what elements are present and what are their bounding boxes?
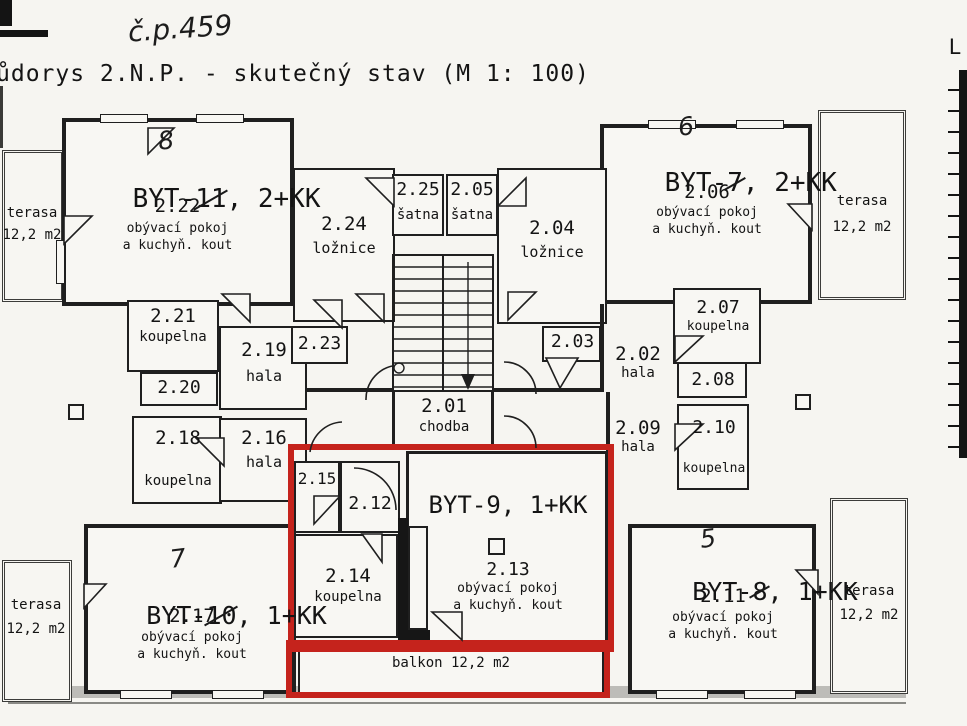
pillar	[488, 538, 505, 555]
wall-stub	[307, 388, 392, 392]
legend-ticks	[948, 70, 960, 458]
room-2-15-number: 2.15	[294, 470, 340, 488]
scan-mark-edge	[0, 86, 3, 148]
room-2-08-number: 2.08	[679, 370, 747, 390]
room-2-22-name-line1: obývací pokoj	[70, 222, 285, 237]
wall-shaft	[398, 518, 408, 646]
ground-line	[8, 702, 906, 704]
pillar	[68, 404, 84, 420]
wall-room-2-13	[406, 451, 608, 645]
terrace-top-right-name: terasa	[818, 194, 906, 210]
room-2-06-name-line1: obývací pokoj	[602, 206, 812, 221]
terrace-top-right-area: 12,2 m2	[818, 220, 906, 236]
door-arc	[366, 366, 392, 400]
room-2-13-number: 2.13	[410, 560, 606, 580]
pillar	[795, 394, 811, 410]
window	[736, 120, 784, 129]
scan-mark-corner	[0, 0, 12, 26]
room-2-06-number: 2.06	[602, 182, 812, 203]
terrace-bottom-right-area: 12,2 m2	[830, 608, 908, 624]
room-2-21-name: koupelna	[127, 330, 219, 346]
terrace-top-left-area: 12,2 m2	[0, 228, 64, 244]
balcony-label: balkon 12,2 m2	[300, 656, 602, 672]
room-2-07-name: koupelna	[675, 320, 761, 335]
room-2-10-number: 2.10	[679, 418, 749, 438]
room-2-24-name: ložnice	[293, 240, 395, 257]
room-2-22-number: 2.22	[70, 196, 285, 217]
room-2-01-number: 2.01	[394, 396, 494, 417]
room-2-04-number: 2.04	[497, 218, 607, 239]
apartment-byt9-title: BYT-9, 1+KK	[408, 492, 608, 519]
room-2-09-number: 2.09	[602, 418, 674, 439]
room-2-05-number: 2.05	[444, 180, 500, 200]
room-2-06-name-line2: a kuchyň. kout	[602, 223, 812, 238]
room-2-05-name: šatna	[444, 208, 500, 224]
door-triangle	[546, 358, 578, 388]
window	[744, 690, 796, 699]
room-2-13-name-line1: obývací pokoj	[410, 582, 606, 597]
room-2-17-number: 2.17	[88, 606, 296, 627]
room-2-11-name-line2: a kuchyň. kout	[630, 628, 816, 643]
stair-direction-arrow	[461, 374, 475, 390]
room-2-02-name: hala	[602, 366, 674, 382]
room-2-21-number: 2.21	[127, 306, 219, 327]
room-2-14-number: 2.14	[298, 566, 398, 587]
window	[100, 114, 148, 123]
handwritten-house-number: č.p.459	[127, 8, 233, 48]
room-2-07-number: 2.07	[675, 298, 761, 318]
window	[656, 690, 708, 699]
room-2-25-name: šatna	[390, 208, 446, 224]
terrace-bottom-left-name: terasa	[2, 598, 70, 614]
room-2-04-name: ložnice	[497, 244, 607, 261]
room-2-25-number: 2.25	[390, 180, 446, 200]
terrace-top-left	[2, 150, 64, 302]
terrace-top-left-name: terasa	[0, 206, 64, 222]
apartment-byt11-handwritten-number: 8	[156, 125, 175, 156]
room-2-23-number: 2.23	[291, 334, 348, 354]
room-2-20-number: 2.20	[140, 378, 218, 398]
room-2-11-number: 2.11	[630, 586, 816, 607]
room-2-12-number: 2.12	[340, 494, 400, 514]
room-2-19-name: hala	[221, 368, 307, 385]
room-2-16-name: hala	[221, 454, 307, 471]
shaft-cap	[408, 630, 430, 642]
room-2-17-name-line1: obývací pokoj	[88, 631, 296, 646]
legend-letter: L	[944, 36, 966, 60]
window	[56, 240, 65, 284]
window	[196, 114, 244, 123]
window	[120, 690, 172, 699]
room-2-09-name: hala	[602, 440, 674, 456]
room-2-18-name: koupelna	[134, 474, 222, 490]
terrace-bottom-left-area: 12,2 m2	[2, 622, 70, 638]
floorplan-scan: ůdorys 2.N.P. - skutečný stav (M 1: 100)…	[0, 0, 967, 726]
stair-start-mark	[394, 363, 404, 373]
staircase	[393, 255, 493, 391]
apartment-byt8-handwritten-number: 5	[698, 523, 717, 554]
room-2-22-name-line2: a kuchyň. kout	[70, 239, 285, 254]
scan-mark-line	[0, 30, 48, 37]
room-2-13-name-line2: a kuchyň. kout	[410, 599, 606, 614]
room-2-18-number: 2.18	[134, 428, 222, 449]
door-arc	[504, 416, 536, 448]
door-arc	[310, 422, 342, 452]
room-2-03-number: 2.03	[544, 332, 601, 352]
legend-table-edge	[959, 70, 967, 458]
room-2-24-number: 2.24	[293, 214, 395, 235]
room-2-10-name: koupelna	[679, 462, 749, 477]
room-2-02-number: 2.02	[602, 344, 674, 365]
room-2-01-name: chodba	[394, 420, 494, 436]
apartment-byt10-handwritten-number: 7	[168, 543, 187, 574]
window	[212, 690, 264, 699]
room-2-17-name-line2: a kuchyň. kout	[88, 648, 296, 663]
apartment-byt7-handwritten-number: 6	[676, 111, 695, 142]
page-title: ůdorys 2.N.P. - skutečný stav (M 1: 100)	[0, 62, 616, 88]
room-2-11-name-line1: obývací pokoj	[630, 611, 816, 626]
wall-stub	[494, 388, 604, 392]
room-2-16-number: 2.16	[221, 428, 307, 449]
